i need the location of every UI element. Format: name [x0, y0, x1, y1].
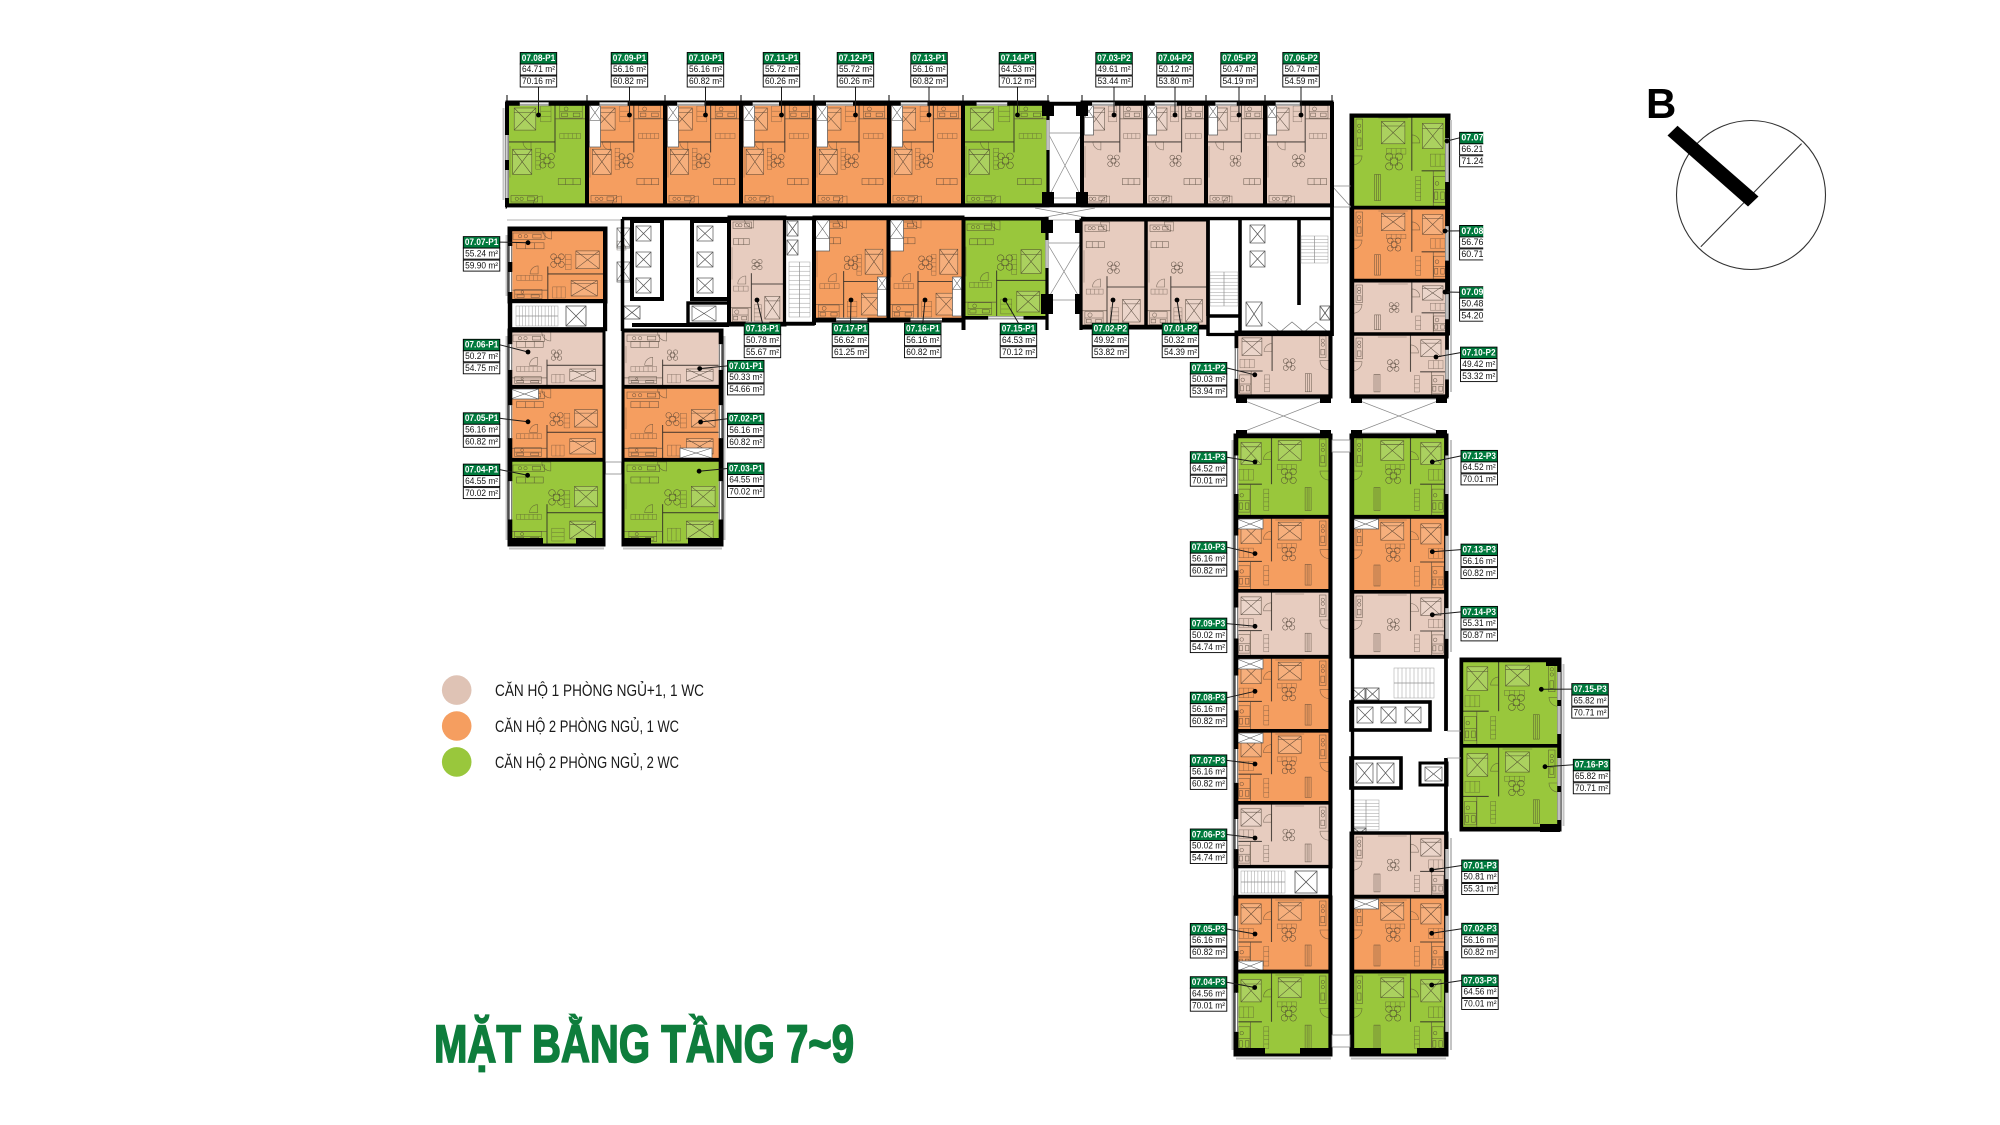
svg-text:53.80 m²: 53.80 m² [1159, 76, 1192, 86]
svg-text:55.72 m²: 55.72 m² [765, 64, 798, 74]
svg-text:65.82 m²: 65.82 m² [1574, 695, 1607, 705]
svg-text:07.06-P3: 07.06-P3 [1192, 829, 1226, 839]
svg-text:70.02 m²: 70.02 m² [465, 488, 498, 498]
svg-text:07.08-P3: 07.08-P3 [1192, 693, 1226, 703]
svg-text:54.20: 54.20 [1461, 310, 1483, 320]
svg-text:07.03-P3: 07.03-P3 [1463, 975, 1497, 985]
svg-text:07.02-P2: 07.02-P2 [1094, 324, 1128, 334]
svg-text:50.27 m²: 50.27 m² [465, 351, 498, 361]
svg-text:60.82 m²: 60.82 m² [1192, 947, 1225, 957]
svg-text:56.16 m²: 56.16 m² [913, 64, 946, 74]
svg-text:07.16-P3: 07.16-P3 [1575, 760, 1609, 770]
svg-text:70.01 m²: 70.01 m² [1464, 999, 1497, 1009]
svg-text:50.81 m²: 50.81 m² [1464, 872, 1497, 882]
svg-text:07.02-P3: 07.02-P3 [1463, 924, 1497, 934]
svg-text:55.24 m²: 55.24 m² [465, 248, 498, 258]
svg-text:60.82 m²: 60.82 m² [906, 347, 939, 357]
svg-text:70.01 m²: 70.01 m² [1192, 475, 1225, 485]
svg-text:B: B [1646, 80, 1676, 127]
svg-text:56.16 m²: 56.16 m² [729, 425, 762, 435]
svg-text:07.15-P3: 07.15-P3 [1573, 684, 1607, 694]
svg-text:54.66 m²: 54.66 m² [729, 384, 762, 394]
svg-text:07.03-P1: 07.03-P1 [729, 463, 763, 473]
svg-text:50.33 m²: 50.33 m² [729, 372, 762, 382]
svg-text:54.74 m²: 54.74 m² [1192, 853, 1225, 863]
svg-text:50.02 m²: 50.02 m² [1192, 841, 1225, 851]
svg-text:07.09-P1: 07.09-P1 [613, 53, 647, 63]
svg-text:60.82 m²: 60.82 m² [689, 76, 722, 86]
svg-text:07.03-P2: 07.03-P2 [1097, 53, 1131, 63]
svg-text:07.18-P1: 07.18-P1 [746, 324, 780, 334]
svg-text:54.39 m²: 54.39 m² [1164, 347, 1197, 357]
svg-text:56.16 m²: 56.16 m² [613, 64, 646, 74]
svg-text:07.04-P3: 07.04-P3 [1192, 977, 1226, 987]
svg-text:07.06-P1: 07.06-P1 [465, 340, 499, 350]
svg-text:54.19 m²: 54.19 m² [1223, 76, 1256, 86]
svg-text:56.16 m²: 56.16 m² [1463, 556, 1496, 566]
svg-text:56.16 m²: 56.16 m² [1464, 935, 1497, 945]
svg-text:07.13-P1: 07.13-P1 [912, 53, 946, 63]
svg-text:53.94 m²: 53.94 m² [1192, 386, 1225, 396]
svg-text:55.72 m²: 55.72 m² [839, 64, 872, 74]
svg-text:66.21: 66.21 [1461, 144, 1483, 154]
svg-text:56.16 m²: 56.16 m² [1192, 704, 1225, 714]
svg-text:50.78 m²: 50.78 m² [746, 335, 779, 345]
svg-text:50.02 m²: 50.02 m² [1192, 630, 1225, 640]
svg-text:07.09: 07.09 [1461, 287, 1483, 297]
svg-text:50.32 m²: 50.32 m² [1164, 335, 1197, 345]
svg-text:07.08-P1: 07.08-P1 [522, 53, 556, 63]
svg-text:56.76: 56.76 [1461, 237, 1483, 247]
svg-text:70.01 m²: 70.01 m² [1192, 1000, 1225, 1010]
svg-text:70.16 m²: 70.16 m² [522, 76, 555, 86]
svg-text:64.52 m²: 64.52 m² [1192, 463, 1225, 473]
svg-text:64.71 m²: 64.71 m² [522, 64, 555, 74]
svg-text:07.11-P1: 07.11-P1 [765, 53, 799, 63]
svg-text:54.75 m²: 54.75 m² [465, 363, 498, 373]
svg-text:56.16 m²: 56.16 m² [906, 335, 939, 345]
svg-text:50.48: 50.48 [1461, 298, 1483, 308]
svg-text:54.74 m²: 54.74 m² [1192, 642, 1225, 652]
svg-text:07.14-P3: 07.14-P3 [1462, 607, 1496, 617]
svg-text:CĂN HỘ 2 PHÒNG NGỦ, 1 WC: CĂN HỘ 2 PHÒNG NGỦ, 1 WC [495, 717, 679, 736]
svg-text:54.59 m²: 54.59 m² [1285, 76, 1318, 86]
svg-text:60.82 m²: 60.82 m² [1192, 716, 1225, 726]
svg-text:07.07-P3: 07.07-P3 [1192, 755, 1226, 765]
svg-text:70.12 m²: 70.12 m² [1001, 76, 1034, 86]
svg-text:71.24: 71.24 [1461, 156, 1483, 166]
svg-text:56.16 m²: 56.16 m² [1192, 767, 1225, 777]
svg-text:60.26 m²: 60.26 m² [839, 76, 872, 86]
svg-text:53.44 m²: 53.44 m² [1098, 76, 1131, 86]
svg-text:07.05-P1: 07.05-P1 [465, 413, 499, 423]
svg-text:60.82 m²: 60.82 m² [465, 437, 498, 447]
svg-text:64.56 m²: 64.56 m² [1464, 987, 1497, 997]
svg-text:07.12-P1: 07.12-P1 [839, 53, 873, 63]
svg-text:65.82 m²: 65.82 m² [1575, 771, 1608, 781]
svg-text:70.71 m²: 70.71 m² [1574, 707, 1607, 717]
svg-text:07.17-P1: 07.17-P1 [834, 324, 868, 334]
svg-text:07.01-P1: 07.01-P1 [729, 361, 763, 371]
svg-text:50.74 m²: 50.74 m² [1285, 64, 1318, 74]
svg-text:07.01-P3: 07.01-P3 [1463, 860, 1497, 870]
svg-text:CĂN HỘ 2 PHÒNG NGỦ, 2 WC: CĂN HỘ 2 PHÒNG NGỦ, 2 WC [495, 753, 679, 772]
svg-text:07.08: 07.08 [1461, 226, 1483, 236]
svg-text:MẶT BẰNG TẦNG 7~9: MẶT BẰNG TẦNG 7~9 [434, 1014, 854, 1074]
svg-text:49.42 m²: 49.42 m² [1462, 359, 1495, 369]
svg-text:07.06-P2: 07.06-P2 [1284, 53, 1318, 63]
svg-text:56.16 m²: 56.16 m² [465, 425, 498, 435]
svg-text:60.71: 60.71 [1461, 249, 1483, 259]
svg-text:56.16 m²: 56.16 m² [689, 64, 722, 74]
svg-text:07.01-P2: 07.01-P2 [1164, 324, 1198, 334]
svg-text:53.32 m²: 53.32 m² [1462, 371, 1495, 381]
svg-text:61.25 m²: 61.25 m² [834, 347, 867, 357]
svg-text:07.12-P3: 07.12-P3 [1462, 451, 1496, 461]
svg-text:07.11-P2: 07.11-P2 [1192, 363, 1226, 373]
svg-text:60.82 m²: 60.82 m² [1464, 947, 1497, 957]
svg-text:55.31 m²: 55.31 m² [1464, 884, 1497, 894]
svg-text:55.31 m²: 55.31 m² [1463, 618, 1496, 628]
svg-text:07.10-P2: 07.10-P2 [1462, 348, 1496, 358]
svg-text:59.90 m²: 59.90 m² [465, 260, 498, 270]
svg-text:64.56 m²: 64.56 m² [1192, 988, 1225, 998]
svg-text:50.87 m²: 50.87 m² [1463, 630, 1496, 640]
svg-text:60.82 m²: 60.82 m² [913, 76, 946, 86]
svg-text:56.16 m²: 56.16 m² [1192, 553, 1225, 563]
svg-text:70.71 m²: 70.71 m² [1575, 783, 1608, 793]
svg-text:70.12 m²: 70.12 m² [1002, 347, 1035, 357]
svg-text:07.10-P1: 07.10-P1 [689, 53, 723, 63]
svg-text:07.05-P3: 07.05-P3 [1192, 924, 1226, 934]
svg-text:60.82 m²: 60.82 m² [1192, 565, 1225, 575]
svg-text:50.47 m²: 50.47 m² [1223, 64, 1256, 74]
svg-text:49.61 m²: 49.61 m² [1098, 64, 1131, 74]
svg-text:07.02-P1: 07.02-P1 [729, 414, 763, 424]
svg-text:07.11-P3: 07.11-P3 [1192, 452, 1226, 462]
svg-text:60.82 m²: 60.82 m² [1463, 568, 1496, 578]
svg-text:64.55 m²: 64.55 m² [465, 476, 498, 486]
svg-text:07.04-P2: 07.04-P2 [1158, 53, 1192, 63]
svg-text:07.09-P3: 07.09-P3 [1192, 619, 1226, 629]
svg-text:53.82 m²: 53.82 m² [1094, 347, 1127, 357]
svg-text:64.55 m²: 64.55 m² [729, 475, 762, 485]
svg-text:07.07: 07.07 [1461, 133, 1483, 143]
svg-text:64.53 m²: 64.53 m² [1002, 335, 1035, 345]
svg-text:07.15-P1: 07.15-P1 [1002, 324, 1036, 334]
svg-text:50.12 m²: 50.12 m² [1159, 64, 1192, 74]
svg-text:07.14-P1: 07.14-P1 [1001, 53, 1035, 63]
svg-text:70.02 m²: 70.02 m² [729, 487, 762, 497]
svg-text:50.03 m²: 50.03 m² [1192, 374, 1225, 384]
svg-text:60.26 m²: 60.26 m² [765, 76, 798, 86]
svg-text:07.05-P2: 07.05-P2 [1222, 53, 1256, 63]
svg-text:64.52 m²: 64.52 m² [1463, 462, 1496, 472]
svg-text:07.13-P3: 07.13-P3 [1462, 545, 1496, 555]
svg-text:60.82 m²: 60.82 m² [1192, 779, 1225, 789]
svg-text:64.53 m²: 64.53 m² [1001, 64, 1034, 74]
svg-text:07.04-P1: 07.04-P1 [465, 465, 499, 475]
svg-text:70.01 m²: 70.01 m² [1463, 474, 1496, 484]
svg-text:07.16-P1: 07.16-P1 [906, 324, 940, 334]
svg-text:56.16 m²: 56.16 m² [1192, 935, 1225, 945]
svg-text:60.82 m²: 60.82 m² [729, 437, 762, 447]
svg-text:49.92 m²: 49.92 m² [1094, 335, 1127, 345]
svg-text:CĂN HỘ 1 PHÒNG NGỦ+1, 1 WC: CĂN HỘ 1 PHÒNG NGỦ+1, 1 WC [495, 681, 704, 700]
svg-text:60.82 m²: 60.82 m² [613, 76, 646, 86]
svg-text:56.62 m²: 56.62 m² [834, 335, 867, 345]
svg-text:07.10-P3: 07.10-P3 [1192, 542, 1226, 552]
svg-text:07.07-P1: 07.07-P1 [465, 237, 499, 247]
svg-text:55.67 m²: 55.67 m² [746, 347, 779, 357]
